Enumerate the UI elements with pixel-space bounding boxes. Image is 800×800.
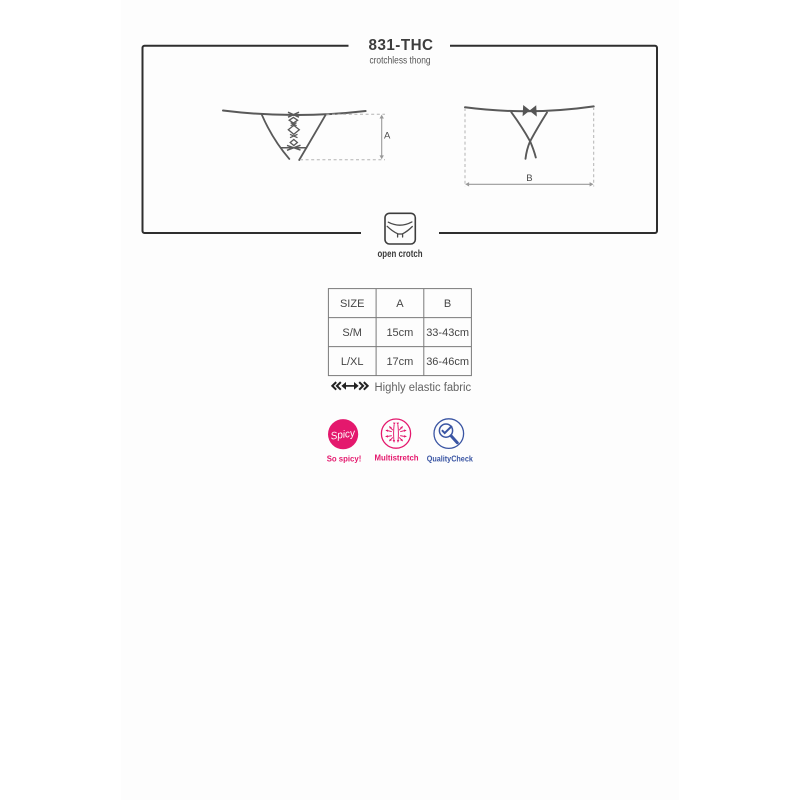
svg-text:33-43cm: 33-43cm [426, 327, 469, 339]
svg-text:831-THC: 831-THC [369, 37, 434, 54]
svg-text:17cm: 17cm [386, 356, 413, 368]
svg-text:A: A [396, 298, 404, 310]
svg-text:So spicy!: So spicy! [327, 454, 362, 463]
svg-text:SIZE: SIZE [340, 298, 364, 310]
svg-text:Highly elastic fabric: Highly elastic fabric [375, 382, 472, 394]
svg-text:S/M: S/M [342, 327, 362, 339]
svg-text:QualityCheck: QualityCheck [427, 454, 474, 464]
svg-text:36-46cm: 36-46cm [426, 356, 469, 368]
svg-text:L/XL: L/XL [341, 356, 364, 368]
svg-text:B: B [526, 173, 532, 184]
svg-text:B: B [444, 298, 451, 310]
svg-text:A: A [384, 130, 391, 141]
svg-text:15cm: 15cm [386, 327, 413, 339]
svg-text:open crotch: open crotch [378, 248, 423, 259]
svg-text:crotchless thong: crotchless thong [369, 55, 430, 67]
svg-text:Multistretch: Multistretch [374, 454, 418, 463]
